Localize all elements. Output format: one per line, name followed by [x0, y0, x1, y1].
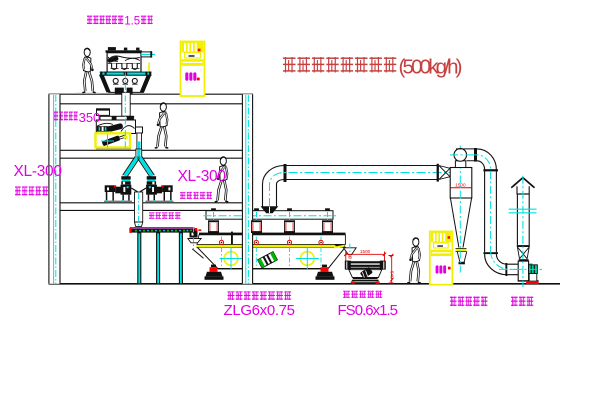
svg-text:(500kg/h): (500kg/h)	[399, 56, 463, 79]
svg-text:75: 75	[348, 254, 353, 259]
svg-text:1500: 1500	[360, 249, 371, 254]
svg-text:FS0.6x1.5: FS0.6x1.5	[338, 302, 399, 319]
svg-text:XL-300: XL-300	[178, 168, 227, 185]
svg-text:540: 540	[390, 271, 395, 279]
svg-text:350: 350	[79, 110, 101, 125]
svg-text:ZLG6x0.75: ZLG6x0.75	[224, 302, 296, 319]
svg-text:XL-300: XL-300	[14, 163, 63, 180]
svg-text:1.5: 1.5	[124, 16, 140, 28]
